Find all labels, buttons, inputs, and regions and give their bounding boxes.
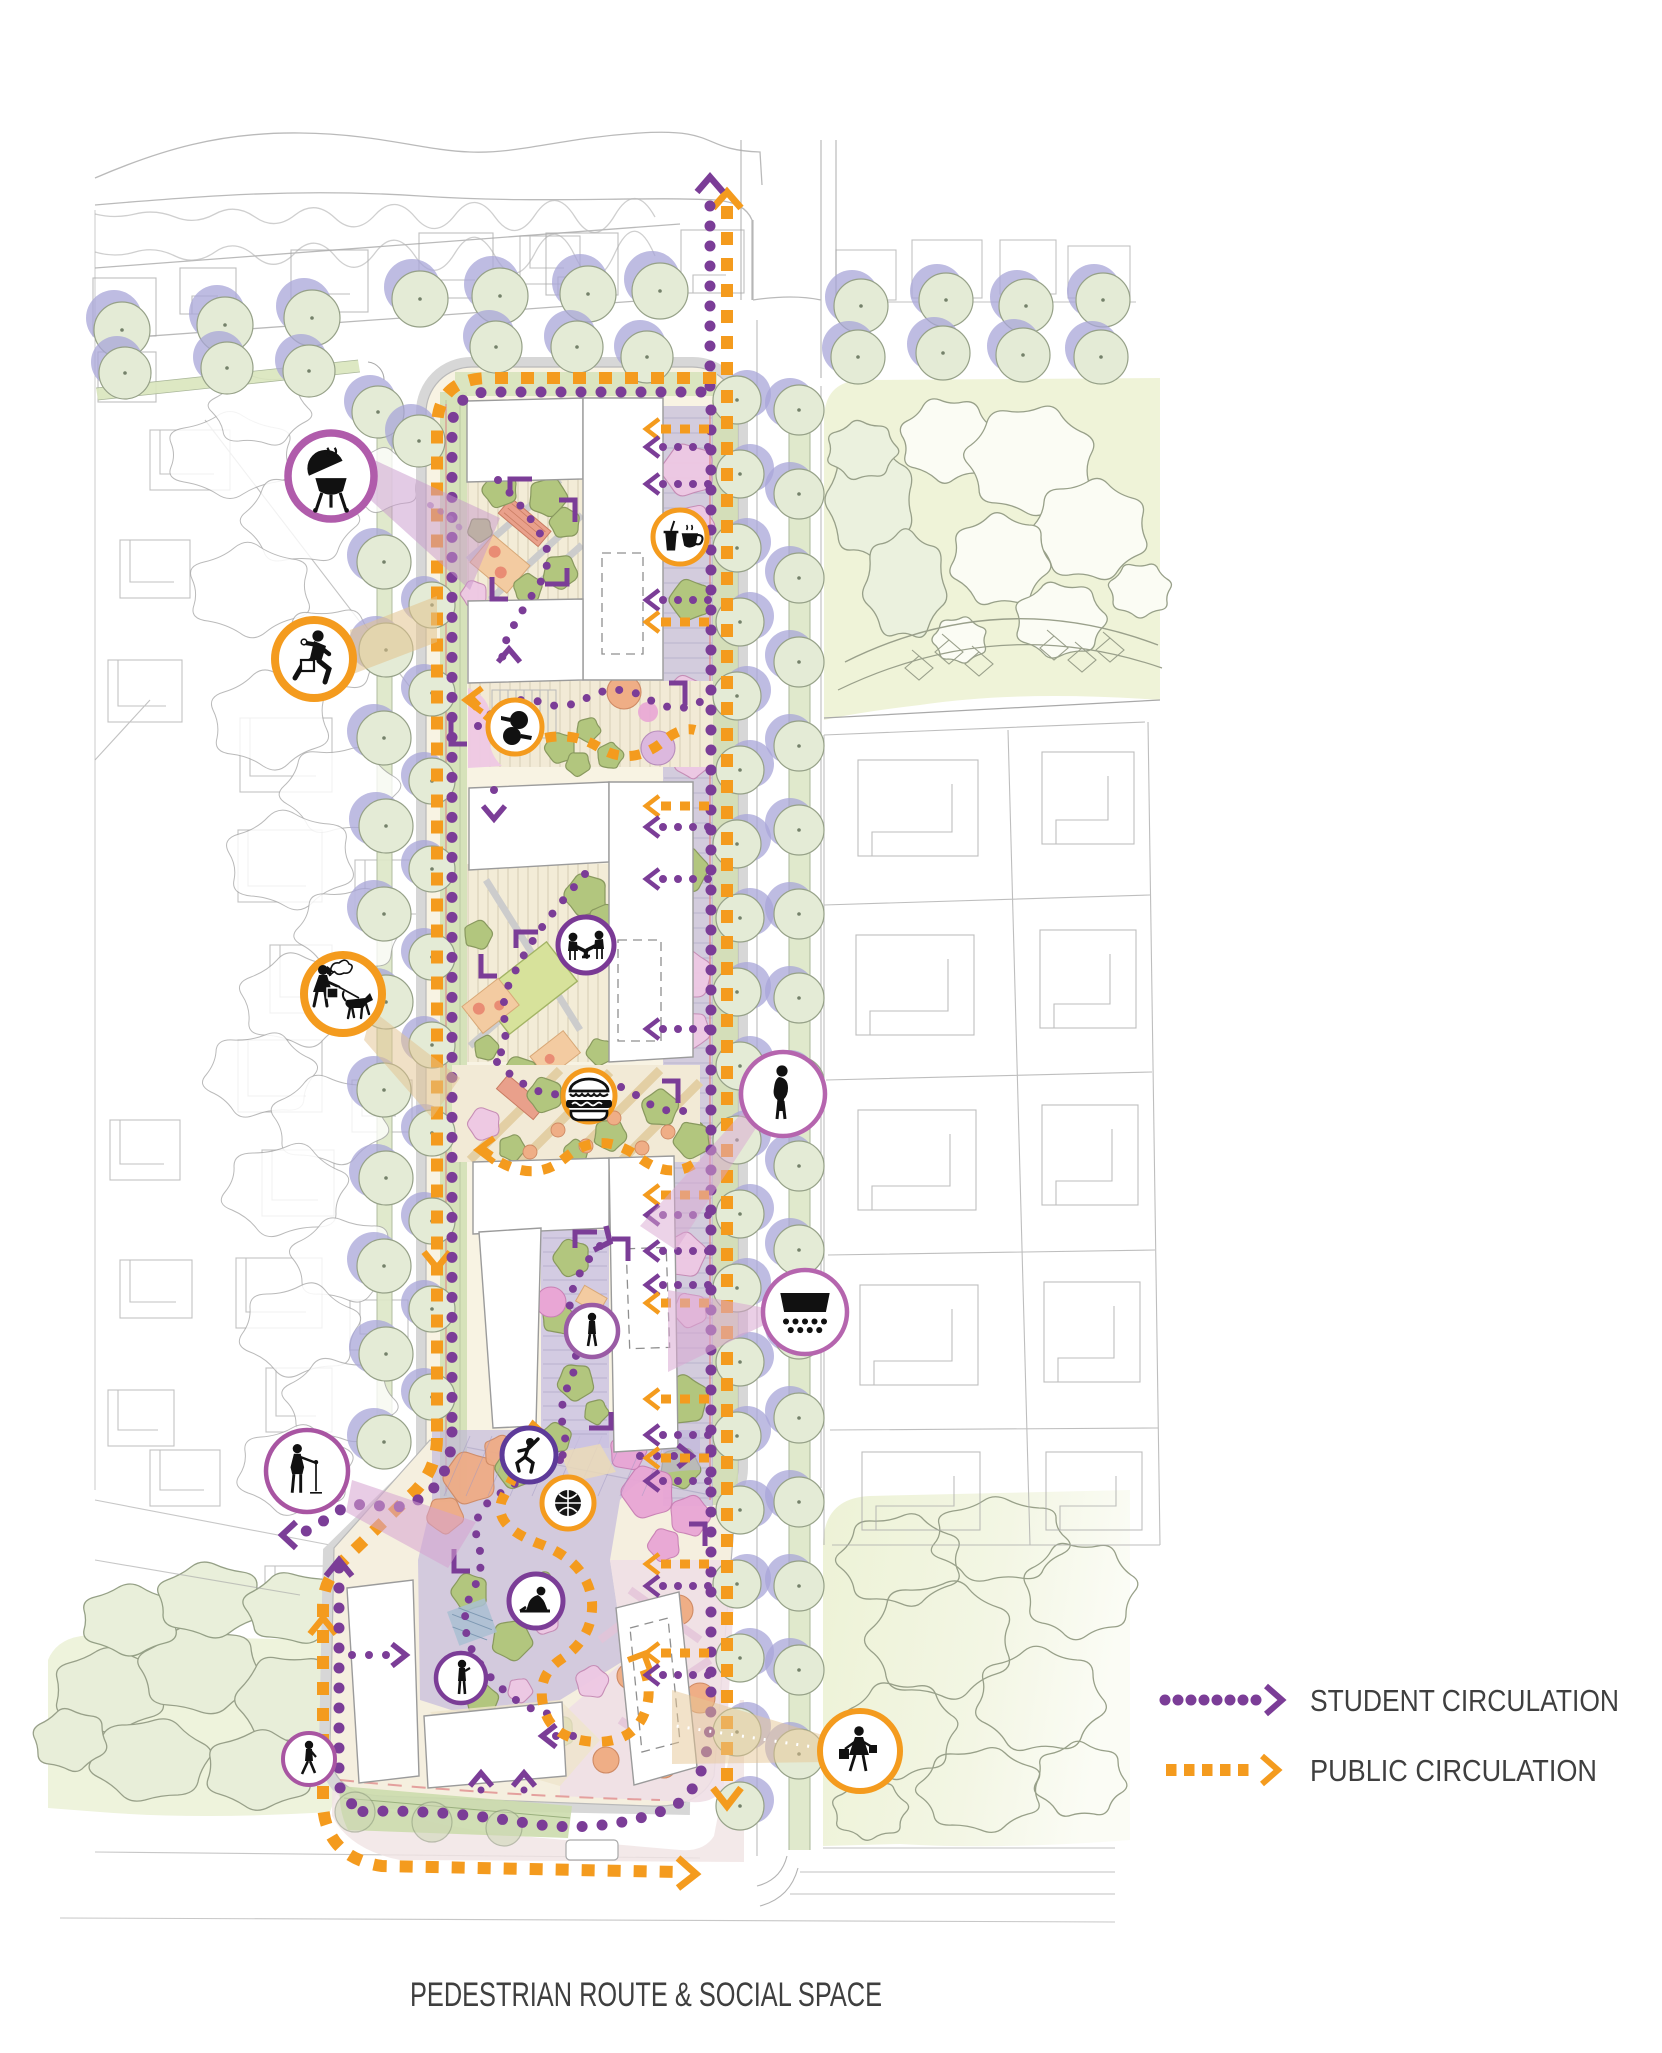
svg-text:PUBLIC CIRCULATION: PUBLIC CIRCULATION [1310, 1753, 1597, 1788]
svg-text:PEDESTRIAN ROUTE & SOCIAL SPAC: PEDESTRIAN ROUTE & SOCIAL SPACE [410, 1976, 882, 2014]
svg-text:STUDENT CIRCULATION: STUDENT CIRCULATION [1310, 1683, 1619, 1718]
